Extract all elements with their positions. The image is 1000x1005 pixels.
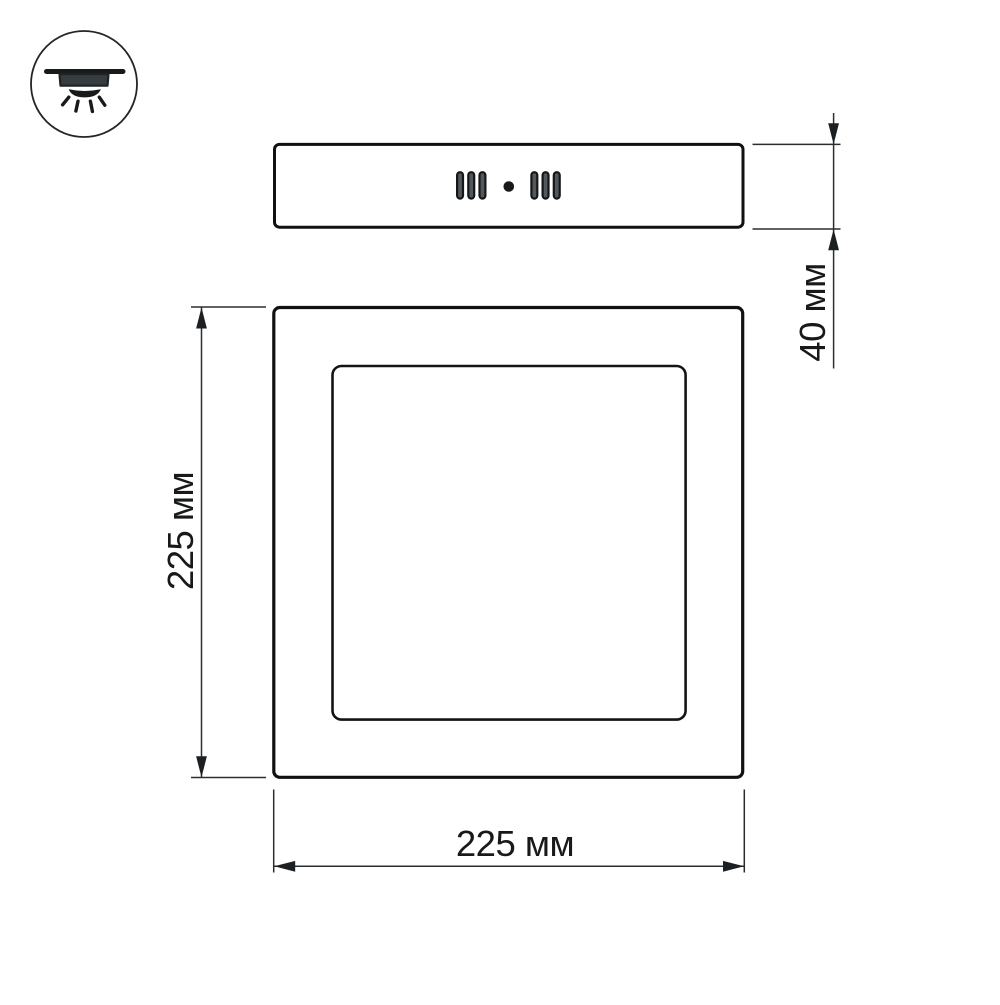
svg-text:40 мм: 40 мм xyxy=(792,263,833,361)
svg-text:225 мм: 225 мм xyxy=(160,472,201,590)
svg-text:225 мм: 225 мм xyxy=(456,823,574,864)
